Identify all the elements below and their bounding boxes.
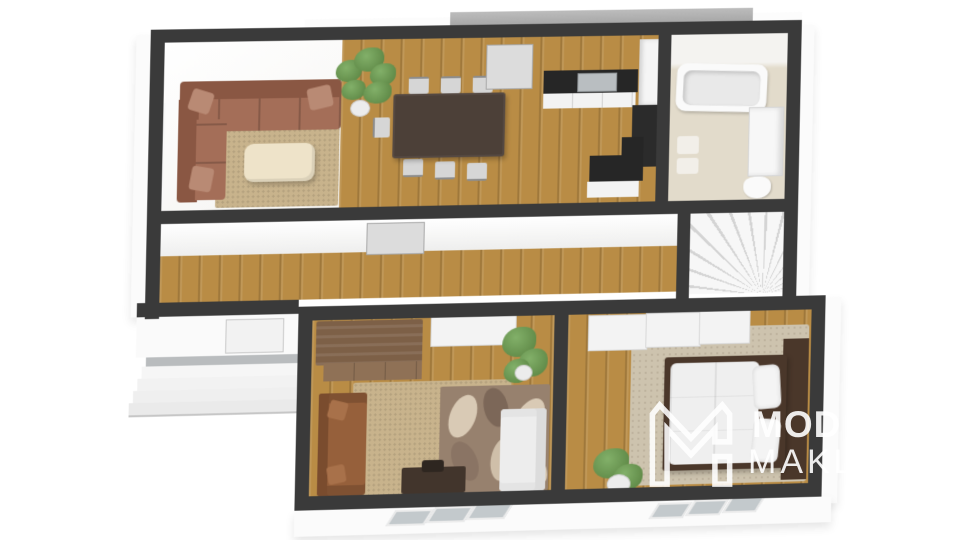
watermark-line1: MOD xyxy=(752,406,841,443)
desk-object xyxy=(422,460,444,473)
study-sofa-pillow xyxy=(326,464,347,485)
hallway-door xyxy=(366,222,425,255)
stair-room-floor xyxy=(689,212,784,294)
bath-mat xyxy=(677,158,699,174)
rug-petal xyxy=(443,391,483,441)
bedroom-closet xyxy=(588,314,648,351)
watermark: MOD MAKL xyxy=(645,388,960,498)
bath-mat xyxy=(677,136,699,154)
hallway-stair-wall xyxy=(676,214,691,308)
bathtub-basin xyxy=(682,70,761,106)
entry-step xyxy=(129,399,297,417)
kitchen-cabinet-front xyxy=(543,92,636,109)
dining-table xyxy=(392,92,505,158)
bedroom-closet xyxy=(645,312,701,348)
dining-chair xyxy=(435,161,455,179)
front-door xyxy=(225,318,284,354)
sofa-pillow xyxy=(188,165,215,192)
study-wardrobe-top xyxy=(316,319,423,366)
m-monogram-icon xyxy=(645,388,737,492)
study-wardrobe-front xyxy=(323,361,422,381)
dining-chair xyxy=(403,159,423,177)
coffee-table xyxy=(244,143,315,182)
dining-chair xyxy=(373,117,390,137)
study-armchair xyxy=(499,408,547,491)
hallway-floor xyxy=(159,246,677,303)
bathroom-vanity xyxy=(748,107,785,177)
watermark-line2: MAKL xyxy=(748,445,857,479)
rear-door xyxy=(486,44,534,90)
kitchen-sink xyxy=(577,73,617,93)
dining-chair xyxy=(441,76,461,93)
kitchen-l-counter xyxy=(589,155,643,182)
dining-chair xyxy=(467,163,487,181)
bedroom-closet xyxy=(699,310,751,345)
kitchen-l-counter-base xyxy=(587,181,639,198)
floorplan-render: MOD MAKL xyxy=(0,0,960,540)
dining-chair xyxy=(409,77,429,94)
